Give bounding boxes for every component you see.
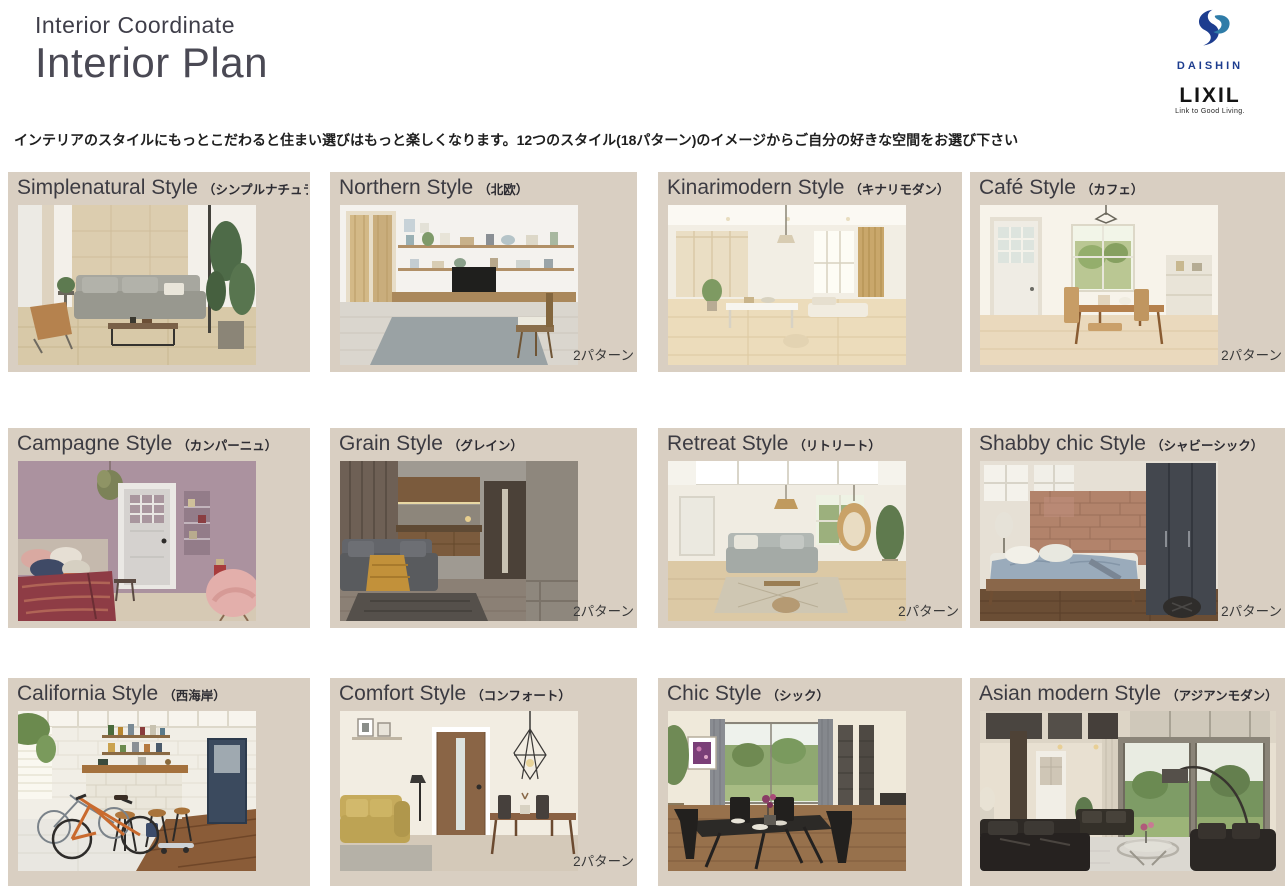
style-card-simplenatural[interactable]: Simplenatural Style （シンプルナチュラル）: [8, 172, 310, 372]
photo-kinarimodern: [668, 205, 906, 365]
page-supertitle: Interior Coordinate: [35, 12, 268, 39]
photo-chic: [668, 711, 906, 871]
card-title: Retreat Style （リトリート）: [667, 432, 960, 456]
page-header: Interior Coordinate Interior Plan: [35, 12, 268, 87]
style-card-shabby-chic[interactable]: Shabby chic Style （シャビーシック）: [970, 428, 1285, 628]
style-card-asian-modern[interactable]: Asian modern Style （アジアンモダン）: [970, 678, 1285, 886]
card-title: Shabby chic Style （シャビーシック）: [979, 432, 1283, 456]
photo-retreat: [668, 461, 906, 621]
lixil-wordmark: LIXIL: [1151, 84, 1269, 108]
card-title: Campagne Style （カンパーニュ）: [17, 432, 308, 456]
photo-northern: [340, 205, 578, 365]
style-card-comfort[interactable]: Comfort Style （コンフォート）: [330, 678, 637, 886]
card-title: Kinarimodern Style （キナリモダン）: [667, 176, 960, 200]
card-title: Asian modern Style （アジアンモダン）: [979, 682, 1283, 706]
card-title: Simplenatural Style （シンプルナチュラル）: [17, 176, 308, 200]
pattern-count-badge: 2パターン: [573, 600, 634, 620]
pattern-count-badge: 2パターン: [573, 850, 634, 870]
photo-cafe: [980, 205, 1218, 365]
pattern-count-badge: 2パターン: [1221, 344, 1282, 364]
card-title: Northern Style （北欧）: [339, 176, 635, 200]
pattern-count-badge: 2パターン: [898, 600, 959, 620]
page: Interior Coordinate Interior Plan DAISHI…: [0, 0, 1285, 886]
style-card-grain[interactable]: Grain Style （グレイン）: [330, 428, 637, 628]
photo-asian-modern: [980, 711, 1276, 871]
pattern-count-badge: 2パターン: [1221, 600, 1282, 620]
card-title: Grain Style （グレイン）: [339, 432, 635, 456]
photo-comfort: [340, 711, 578, 871]
style-card-northern[interactable]: Northern Style （北欧）: [330, 172, 637, 372]
pattern-count-badge: 2パターン: [573, 344, 634, 364]
daishin-logo-icon: [1184, 41, 1236, 58]
card-title: Chic Style （シック）: [667, 682, 960, 706]
lixil-tagline: Link to Good Living.: [1151, 108, 1269, 115]
style-card-chic[interactable]: Chic Style （シック）: [658, 678, 962, 886]
daishin-logo: DAISHIN: [1151, 8, 1269, 72]
card-title: Comfort Style （コンフォート）: [339, 682, 635, 706]
brand-logos: DAISHIN LIXIL Link to Good Living.: [1151, 8, 1269, 115]
style-card-campagne[interactable]: Campagne Style （カンパーニュ）: [8, 428, 310, 628]
photo-california: [18, 711, 256, 871]
style-card-kinarimodern[interactable]: Kinarimodern Style （キナリモダン）: [658, 172, 962, 372]
photo-shabby-chic: [980, 461, 1218, 621]
daishin-wordmark: DAISHIN: [1151, 60, 1269, 72]
photo-simplenatural: [18, 205, 256, 365]
style-card-cafe[interactable]: Café Style （カフェ）: [970, 172, 1285, 372]
photo-campagne: [18, 461, 256, 621]
card-title: Café Style （カフェ）: [979, 176, 1283, 200]
page-description: インテリアのスタイルにもっとこだわると住まい選びはもっと楽しくなります。12つの…: [14, 130, 1018, 150]
style-card-california[interactable]: California Style （西海岸）: [8, 678, 310, 886]
photo-grain: [340, 461, 578, 621]
lixil-logo: LIXIL Link to Good Living.: [1151, 84, 1269, 115]
page-title: Interior Plan: [35, 39, 268, 87]
card-title: California Style （西海岸）: [17, 682, 308, 706]
style-card-retreat[interactable]: Retreat Style （リトリート）: [658, 428, 962, 628]
